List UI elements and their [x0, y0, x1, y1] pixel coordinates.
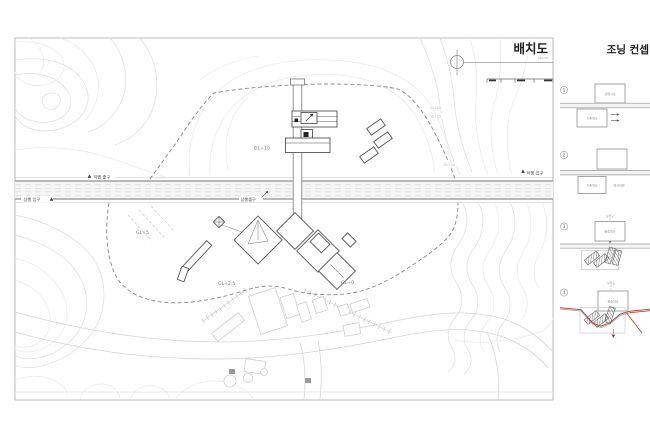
- step1-top-box-label: 상업시설: [604, 91, 615, 96]
- site-plan: 하행 출구 상행 입구 상행출구 하행 입구: [15, 38, 553, 400]
- step1-bottom-box-label: 기존역사: [586, 116, 597, 121]
- gate-label-down-exit: 하행 출구: [94, 174, 111, 181]
- zoning-step-3: 3 보행교 환승역사: [560, 214, 650, 270]
- small-structure: [229, 369, 235, 374]
- gate-label-up-exit: 상행출구: [241, 196, 257, 203]
- zoning-step-1: 1 상업시설 기존역사: [560, 84, 650, 127]
- step4-top-box-label: 환승역사: [607, 299, 618, 304]
- arrow-right-icon: [617, 113, 620, 115]
- contour-label-gl15: GL+15: [430, 114, 441, 118]
- gate-label-up-entry: 상행 입구: [24, 196, 41, 203]
- step-number: 1: [563, 88, 566, 94]
- railway-corridor: [15, 178, 553, 203]
- step-number: 3: [563, 224, 566, 230]
- step3-top-box-label: 환승역사: [604, 229, 615, 234]
- step-number: 4: [563, 290, 566, 296]
- label-gl10: GL+10: [254, 146, 270, 152]
- zoning-step-4: 4 보행교 환승역사: [560, 281, 650, 338]
- drawing-sheet: 하행 출구 상행 입구 상행출구 하행 입구: [0, 0, 650, 433]
- step3-peak-label: 보행교: [606, 214, 614, 218]
- gate-label-down-entry: 하행 입구: [527, 170, 544, 177]
- plan-frame: [15, 38, 553, 400]
- small-structure: [305, 378, 311, 383]
- step-number: 2: [563, 153, 566, 159]
- zoning-title: 조닝 컨셉: [607, 43, 649, 56]
- label-gl0: GL+0: [341, 280, 354, 286]
- zoning-concept-panel: 조닝 컨셉 1 상업시설 기존역사 2 기존역사: [560, 43, 650, 338]
- step2-side-label: 역사이전: [613, 183, 624, 188]
- contour-label-gl20: GL+20: [430, 106, 441, 110]
- step4-peak-label: 보행교: [607, 281, 615, 285]
- red-marker-icon: [611, 335, 615, 339]
- arrow-right-icon: [617, 119, 620, 121]
- terrain-slope-line-red: [627, 314, 642, 334]
- plan-title-note: GL+15: [538, 56, 548, 60]
- step2-bottom-box-label: 기존역사: [586, 183, 597, 188]
- plan-title: 배치도: [513, 41, 548, 56]
- label-gl2-5: GL+2.5: [218, 281, 235, 287]
- label-gl5: GL+5: [136, 230, 149, 236]
- zoning-step-2: 2 기존역사 역사이전: [560, 149, 650, 194]
- contour-label-gl10: GL+10: [444, 163, 455, 167]
